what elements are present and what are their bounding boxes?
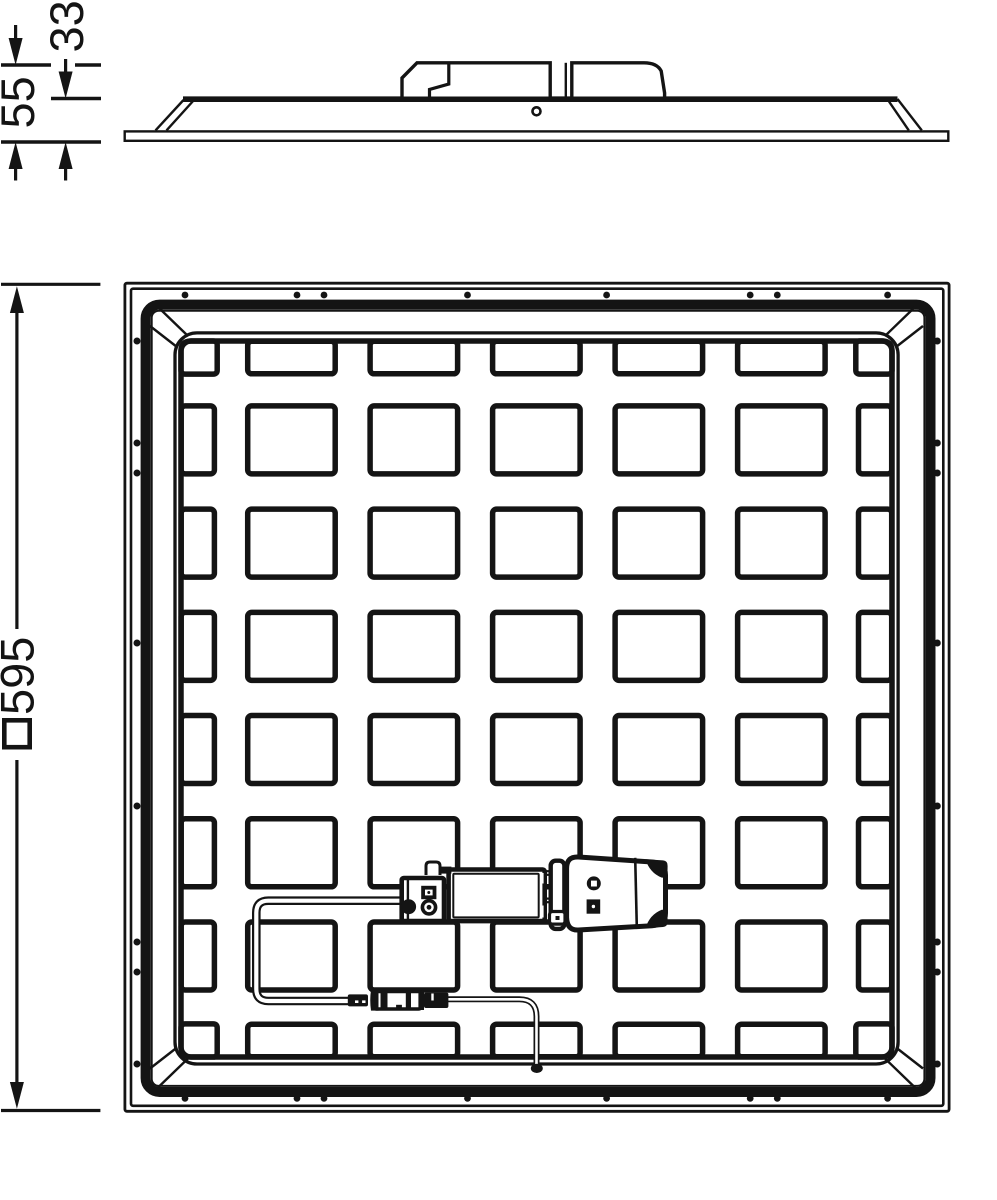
svg-text:55: 55 — [0, 76, 44, 128]
svg-text:595: 595 — [0, 637, 43, 715]
svg-text:33: 33 — [40, 0, 93, 52]
